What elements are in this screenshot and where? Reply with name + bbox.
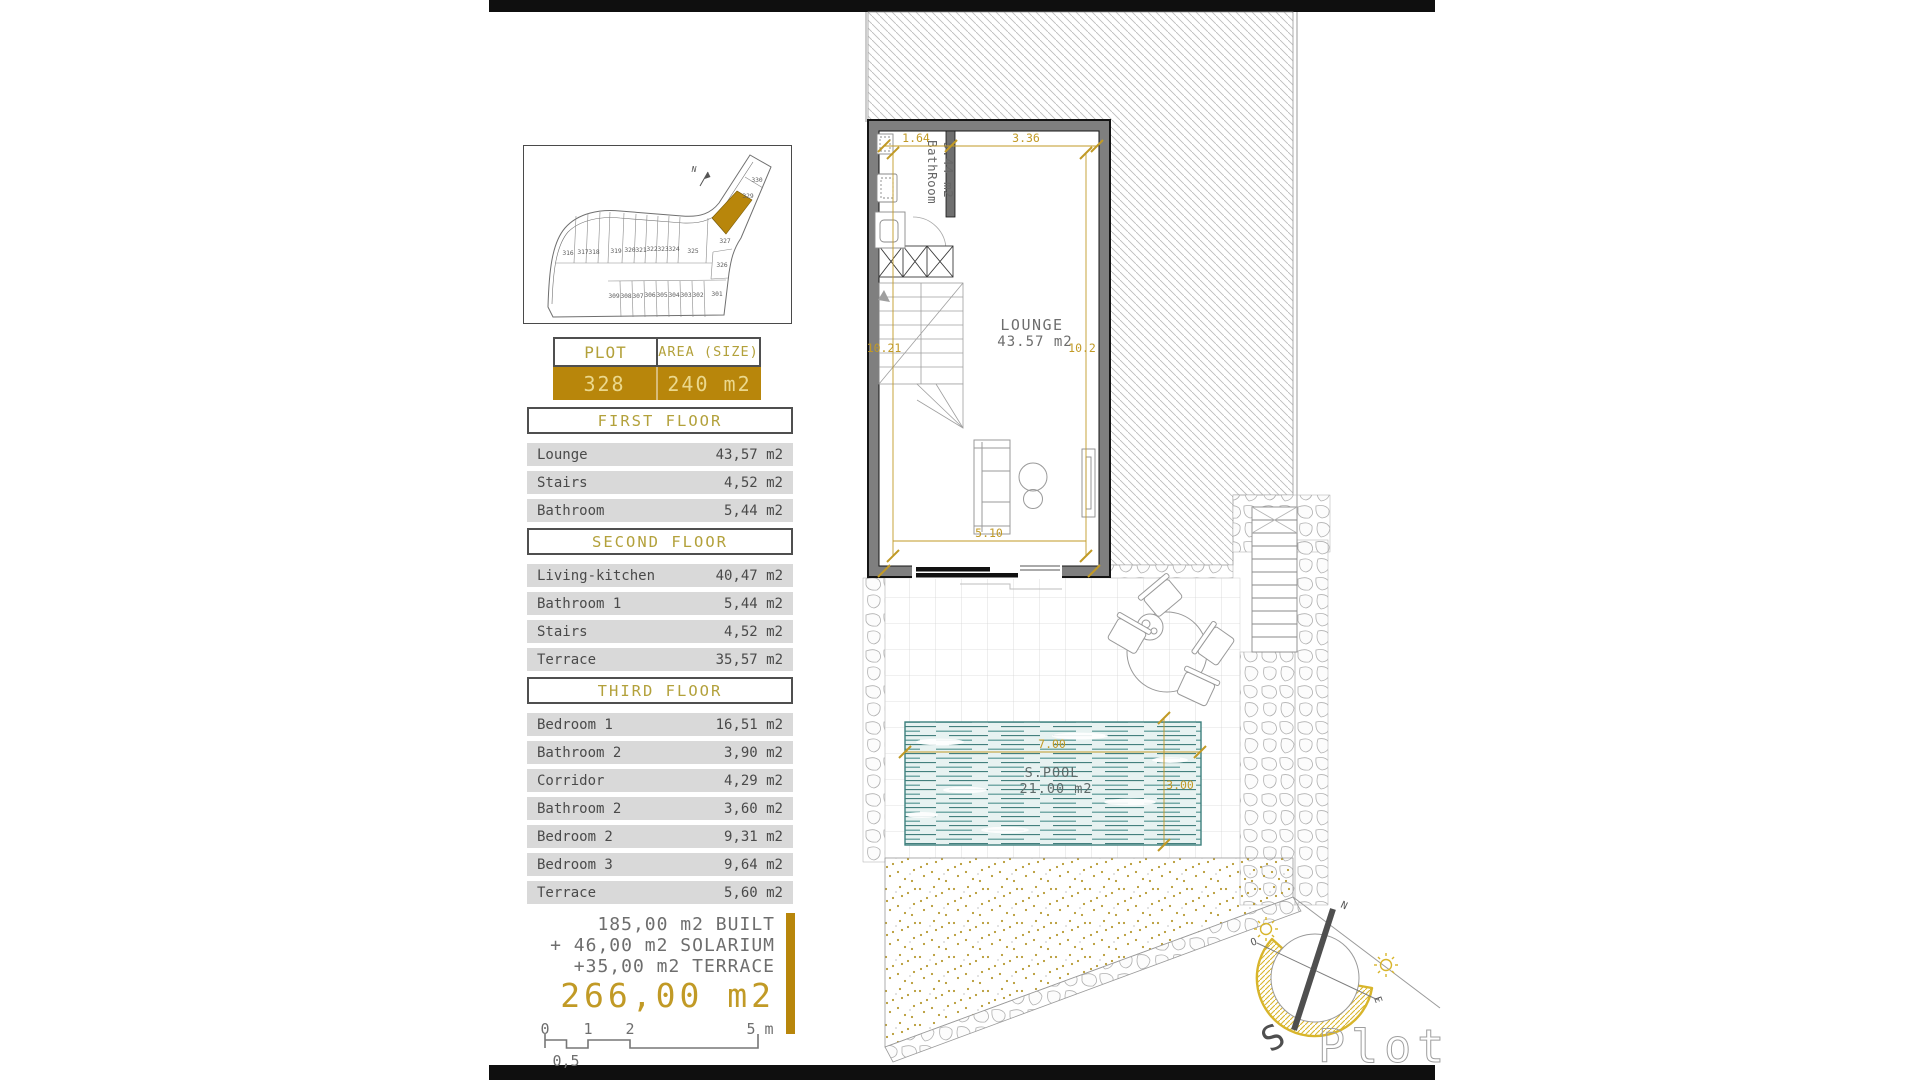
- table-row: Living-kitchen 40,47 m2: [527, 564, 793, 587]
- floor-area-tables: FIRST FLOOR Lounge 43,57 m2 Stairs 4,52 …: [527, 407, 793, 909]
- room-label: Stairs: [537, 475, 588, 491]
- table-row: Bathroom 2 3,60 m2: [527, 797, 793, 820]
- lounge-label: LOUNGE: [1000, 316, 1063, 334]
- table-row: Terrace 5,60 m2: [527, 881, 793, 904]
- scale-bar-line: [545, 1034, 758, 1048]
- scale-tick-label: 0: [540, 1022, 549, 1038]
- room-label: Bathroom: [537, 503, 604, 519]
- room-area: 40,47 m2: [716, 568, 783, 584]
- floorplan-sheet: N 316 317 318 319 320 321 322 323 324 32…: [0, 0, 1920, 1080]
- room-area: 4,29 m2: [724, 773, 783, 789]
- scale-tick-label: 1: [583, 1022, 592, 1038]
- site-north-label: N: [691, 165, 697, 174]
- room-area: 5,44 m2: [724, 503, 783, 519]
- table-row: Corridor 4,29 m2: [527, 769, 793, 792]
- area-summary: 185,00 m2 BUILT + 46,00 m2 SOLARIUM +35,…: [497, 914, 775, 1006]
- sideboard: [1082, 449, 1095, 517]
- stone-strip-below-hatch: [1110, 565, 1233, 578]
- room-label: Corridor: [537, 773, 604, 789]
- third-floor-header: THIRD FLOOR: [527, 677, 793, 704]
- site-plan-map: N 316 317 318 319 320 321 322 323 324 32…: [523, 145, 792, 324]
- room-area: 9,31 m2: [724, 829, 783, 845]
- room-label: Lounge: [537, 447, 588, 463]
- plot-number: 319: [610, 248, 622, 255]
- room-label: Bathroom 2: [537, 801, 621, 817]
- plot-table-header: PLOT AREA (SIZE): [553, 337, 761, 367]
- scale-tick-label: 5 m: [746, 1022, 773, 1038]
- plot-number: 317: [577, 249, 589, 256]
- dim-right: 10.2: [1068, 341, 1096, 355]
- plot-header-cell: PLOT: [555, 339, 656, 365]
- bathroom-area-label: 5.44 m2: [941, 142, 956, 198]
- compass-north-label: N: [1339, 900, 1349, 913]
- plot-number: 301: [711, 291, 723, 298]
- dim-top-left: 1.64: [902, 131, 930, 145]
- pool-label: S.POOL: [1025, 765, 1080, 781]
- bathroom-label: BathRoom: [925, 140, 940, 204]
- lounge-area-label: 43.57 m2: [997, 334, 1072, 350]
- room-area: 3,90 m2: [724, 745, 783, 761]
- sliding-door-leaf: [916, 567, 990, 572]
- stone-path-right-strip: [1295, 540, 1328, 905]
- plot-area-table: PLOT AREA (SIZE) 328 240 m2: [553, 337, 761, 400]
- plot-number: 322: [646, 246, 658, 253]
- pool-area-label: 21.00 m2: [1019, 781, 1092, 797]
- plot-number: 303: [680, 292, 692, 299]
- stone-band-left: [863, 578, 885, 862]
- table-row: Stairs 4,52 m2: [527, 620, 793, 643]
- table-row: Bathroom 2 3,90 m2: [527, 741, 793, 764]
- area-value-cell: 240 m2: [656, 367, 761, 400]
- compass-circle: [1271, 934, 1359, 1022]
- garden-stairs: [1252, 507, 1297, 652]
- plot-number: 308: [620, 293, 632, 300]
- room-label: Bathroom 1: [537, 596, 621, 612]
- room-label: Living-kitchen: [537, 568, 655, 584]
- scale-tick-label: 2: [625, 1022, 634, 1038]
- plot-number: 324: [668, 246, 680, 253]
- pool-width-dim: 7.00: [1038, 737, 1066, 751]
- plot-table-values: 328 240 m2: [553, 367, 761, 400]
- scale-bar: 0 1 2 5 m 0,5: [535, 1022, 815, 1080]
- summary-accent-bar: [786, 913, 795, 1034]
- table-row: Bedroom 1 16,51 m2: [527, 713, 793, 736]
- site-north-arrow: [700, 172, 711, 186]
- scale-bar-labels: 0 1 2 5 m 0,5: [540, 1022, 773, 1070]
- sliding-door-leaf: [916, 573, 1018, 578]
- compass-east-label: E: [1371, 995, 1383, 1004]
- room-area: 4,52 m2: [724, 624, 783, 640]
- dim-bottom: 5.10: [975, 526, 1003, 540]
- plot-number: 302: [692, 292, 704, 299]
- room-label: Bathroom 2: [537, 745, 621, 761]
- plot-number: 320: [624, 247, 636, 254]
- room-label: Bedroom 2: [537, 829, 613, 845]
- dim-left: 10.21: [867, 341, 902, 355]
- scale-half-label: 0,5: [552, 1052, 579, 1070]
- compass-rose: N S O E Plot: [1249, 900, 1450, 1073]
- plot-number: 323: [657, 246, 669, 253]
- plot-number: 304: [668, 292, 680, 299]
- plot-number: 316: [562, 250, 574, 257]
- room-area: 35,57 m2: [716, 652, 783, 668]
- pool-depth-dim: 3.00: [1166, 778, 1194, 792]
- shower-grid: [879, 246, 953, 277]
- table-row: Terrace 35,57 m2: [527, 648, 793, 671]
- table-row: Bathroom 1 5,44 m2: [527, 592, 793, 615]
- room-label: Stairs: [537, 624, 588, 640]
- table-row: Bedroom 2 9,31 m2: [527, 825, 793, 848]
- room-label: Bedroom 1: [537, 717, 613, 733]
- plot-value-cell: 328: [553, 367, 656, 400]
- table-row: Lounge 43,57 m2: [527, 443, 793, 466]
- plot-number: 306: [644, 292, 656, 299]
- plot-number: 307: [632, 293, 644, 300]
- room-area: 43,57 m2: [716, 447, 783, 463]
- solarium-area-line: + 46,00 m2 SOLARIUM: [497, 935, 775, 956]
- gravel-garden: [885, 858, 1293, 1047]
- plot-number: 329: [742, 193, 754, 200]
- plot-number: 327: [719, 238, 731, 245]
- area-header-cell: AREA (SIZE): [656, 339, 759, 365]
- dim-top-right: 3.36: [1012, 131, 1040, 145]
- plot-number: 321: [635, 247, 647, 254]
- table-row: Stairs 4,52 m2: [527, 471, 793, 494]
- room-area: 9,64 m2: [724, 857, 783, 873]
- plot-number: 330: [751, 177, 763, 184]
- plot-number: 326: [716, 262, 728, 269]
- plot-number: 305: [656, 292, 668, 299]
- room-area: 5,44 m2: [724, 596, 783, 612]
- plot-number: 318: [588, 249, 600, 256]
- pool: S.POOL 21.00 m2 7.00 3.00: [899, 712, 1206, 851]
- room-area: 5,60 m2: [724, 885, 783, 901]
- room-area: 4,52 m2: [724, 475, 783, 491]
- floor-plan-drawing: S.POOL 21.00 m2 7.00 3.00: [850, 0, 1450, 1080]
- plot-number: 309: [608, 293, 620, 300]
- room-area: 16,51 m2: [716, 717, 783, 733]
- room-area: 3,60 m2: [724, 801, 783, 817]
- room-label: Terrace: [537, 885, 596, 901]
- first-floor-header: FIRST FLOOR: [527, 407, 793, 434]
- second-floor-header: SECOND FLOOR: [527, 528, 793, 555]
- table-row: Bathroom 5,44 m2: [527, 499, 793, 522]
- total-area: 266,00 m2: [497, 985, 775, 1006]
- built-area-line: 185,00 m2 BUILT: [497, 914, 775, 935]
- room-label: Bedroom 3: [537, 857, 613, 873]
- plot-number: 325: [687, 248, 699, 255]
- room-label: Terrace: [537, 652, 596, 668]
- sofa: [974, 440, 1010, 534]
- table-row: Bedroom 3 9,64 m2: [527, 853, 793, 876]
- brand-logo-text: Plot: [1318, 1020, 1450, 1073]
- terrace-area-line: +35,00 m2 TERRACE: [497, 956, 775, 977]
